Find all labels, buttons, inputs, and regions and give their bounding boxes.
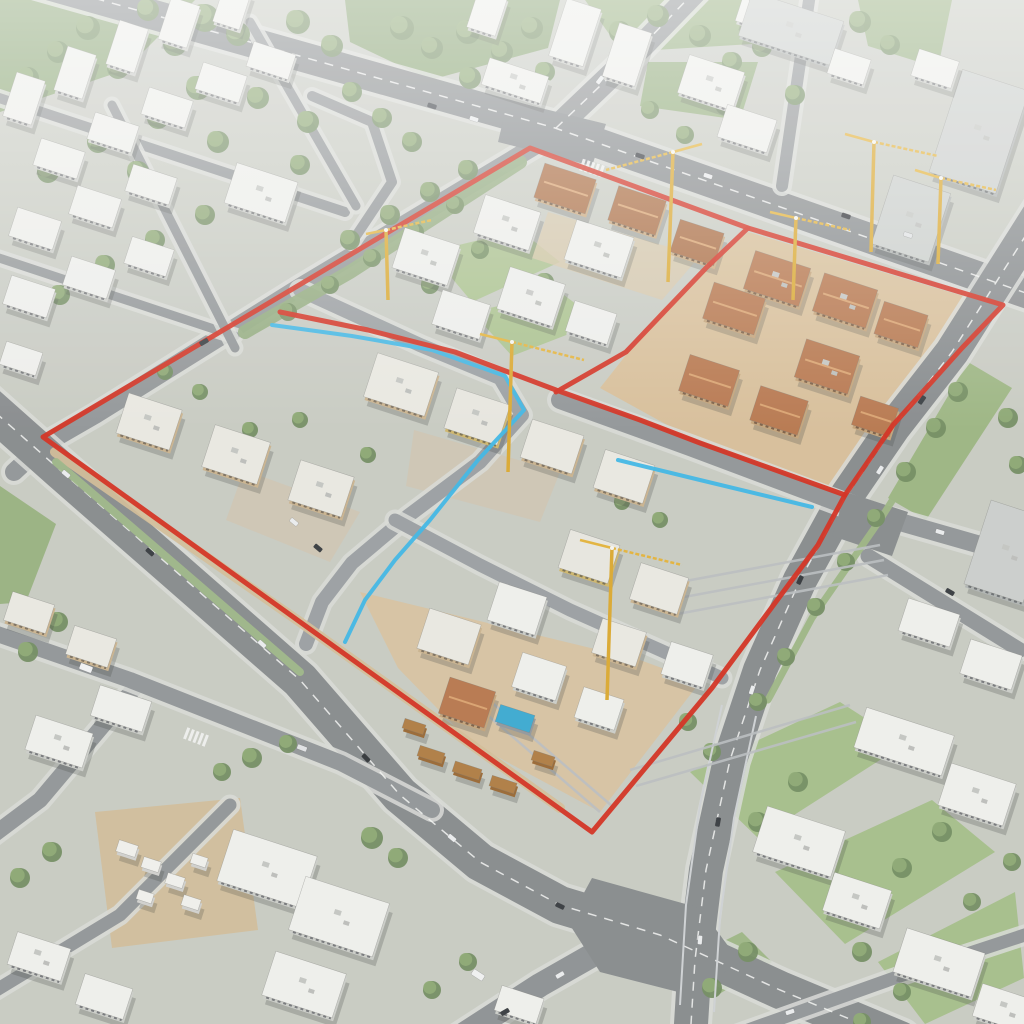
aerial-screenshot (0, 0, 1024, 1024)
white-wash-overlay (0, 0, 1024, 1024)
aerial-construction-scene (0, 0, 1024, 1024)
